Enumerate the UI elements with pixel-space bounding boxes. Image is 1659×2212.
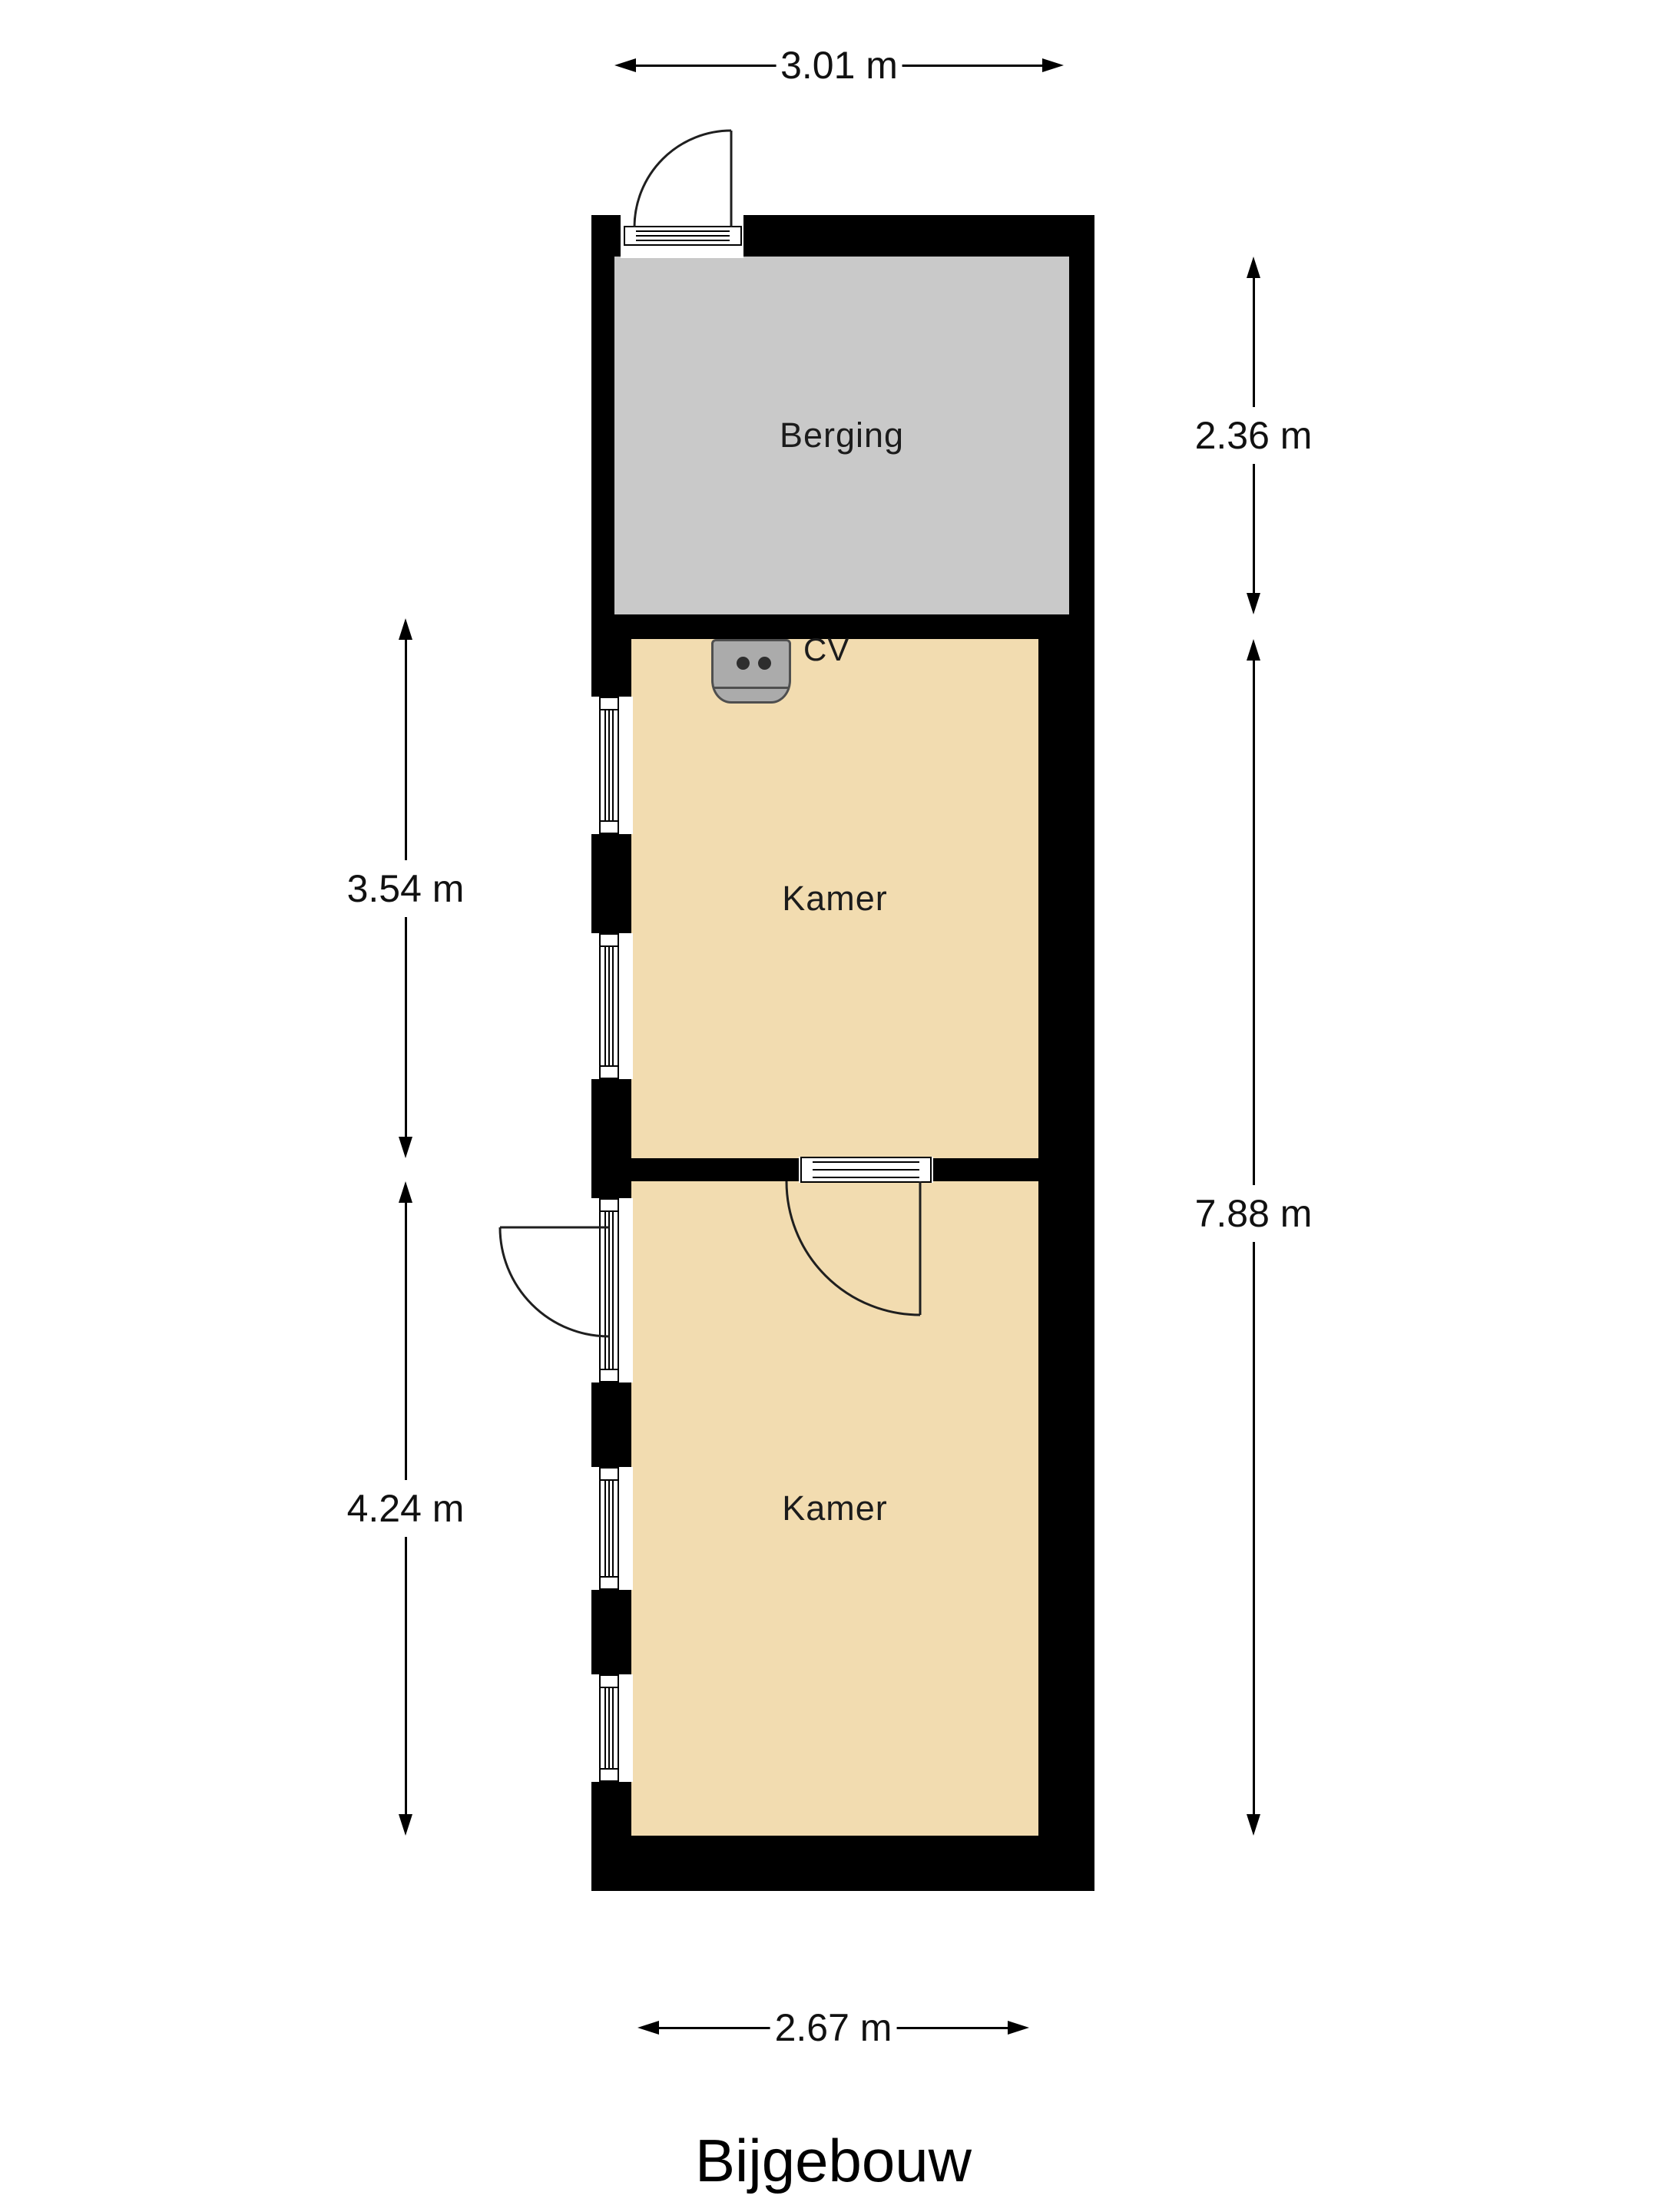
room-kamer-2-label: Kamer [782,1488,888,1528]
threshold-lines-icon [636,230,730,241]
dim-kamer2-height: 4.24 m [395,1181,416,1836]
room-kamer-1-label: Kamer [782,879,888,919]
door-threshold-interior [800,1157,932,1183]
cv-knob-icon [737,657,750,670]
window-glass-icon [604,1210,614,1370]
window-glass-icon [604,1687,614,1770]
glazed-door-left [599,1198,619,1382]
window-sill-icon [601,820,618,833]
cv-label: CV [803,631,849,668]
threshold-lines-icon [813,1161,919,1178]
dim-berging-height-label: 2.36 m [1190,407,1317,464]
floorplan: Berging Kamer Kamer [0,0,1659,2212]
window-3 [599,1467,619,1590]
room-kamer-1: Kamer [631,639,1038,1158]
page-title: Bijgebouw [449,2126,1217,2196]
dim-berging-height: 2.36 m [1243,257,1264,614]
window-glass-icon [604,945,614,1067]
cv-boiler-icon [711,639,791,704]
window-sill-icon [601,1369,618,1381]
window-2 [599,933,619,1079]
dim-kamer1-height: 3.54 m [395,618,416,1158]
window-glass-icon [604,709,614,822]
window-1 [599,697,619,834]
dim-kamer1-height-label: 3.54 m [343,860,469,917]
cv-knob-icon [758,657,771,670]
dim-kamer2-height-label: 4.24 m [343,1480,469,1537]
room-kamer-2: Kamer [631,1181,1038,1836]
window-sill-icon [601,1768,618,1780]
dim-bottom-width-label: 2.67 m [770,1999,897,2056]
window-sill-icon [601,1576,618,1588]
dim-bottom-width: 2.67 m [637,2017,1029,2038]
dim-top-width-label: 3.01 m [776,37,902,94]
room-berging: Berging [614,257,1069,614]
dim-kamers-total-height-label: 7.88 m [1190,1185,1317,1242]
dim-kamers-total-height: 7.88 m [1243,639,1264,1836]
dim-top-width: 3.01 m [614,55,1064,76]
window-sill-icon [601,1065,618,1078]
window-4 [599,1674,619,1782]
cv-base-icon [714,687,789,701]
window-glass-icon [604,1479,614,1578]
room-berging-label: Berging [780,416,904,455]
door-threshold-berging [624,226,742,246]
